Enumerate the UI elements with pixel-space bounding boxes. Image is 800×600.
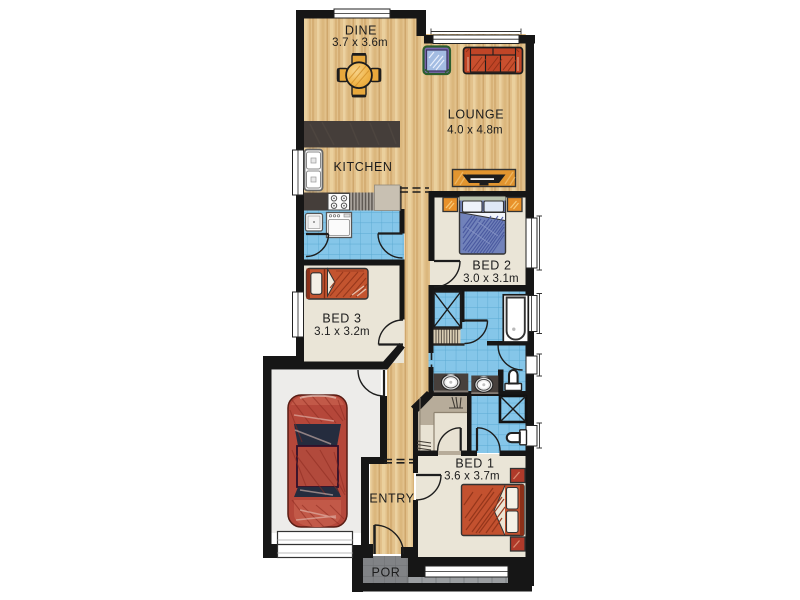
svg-text:3.7 x 3.6m: 3.7 x 3.6m — [332, 37, 388, 49]
svg-text:3.0 x 3.1m: 3.0 x 3.1m — [463, 273, 519, 285]
svg-text:BED 3: BED 3 — [322, 312, 361, 326]
svg-text:BED 1: BED 1 — [455, 457, 494, 471]
svg-text:KITCHEN: KITCHEN — [333, 160, 392, 174]
svg-text:3.1 x 3.2m: 3.1 x 3.2m — [314, 326, 370, 338]
svg-text:BED 2: BED 2 — [472, 259, 511, 273]
svg-text:POR: POR — [372, 566, 401, 580]
svg-text:3.6 x 3.7m: 3.6 x 3.7m — [444, 471, 500, 483]
svg-text:DINE: DINE — [345, 24, 377, 38]
svg-text:LOUNGE: LOUNGE — [448, 108, 504, 122]
svg-text:4.0 x 4.8m: 4.0 x 4.8m — [447, 125, 503, 137]
svg-text:ENTRY: ENTRY — [369, 492, 414, 506]
